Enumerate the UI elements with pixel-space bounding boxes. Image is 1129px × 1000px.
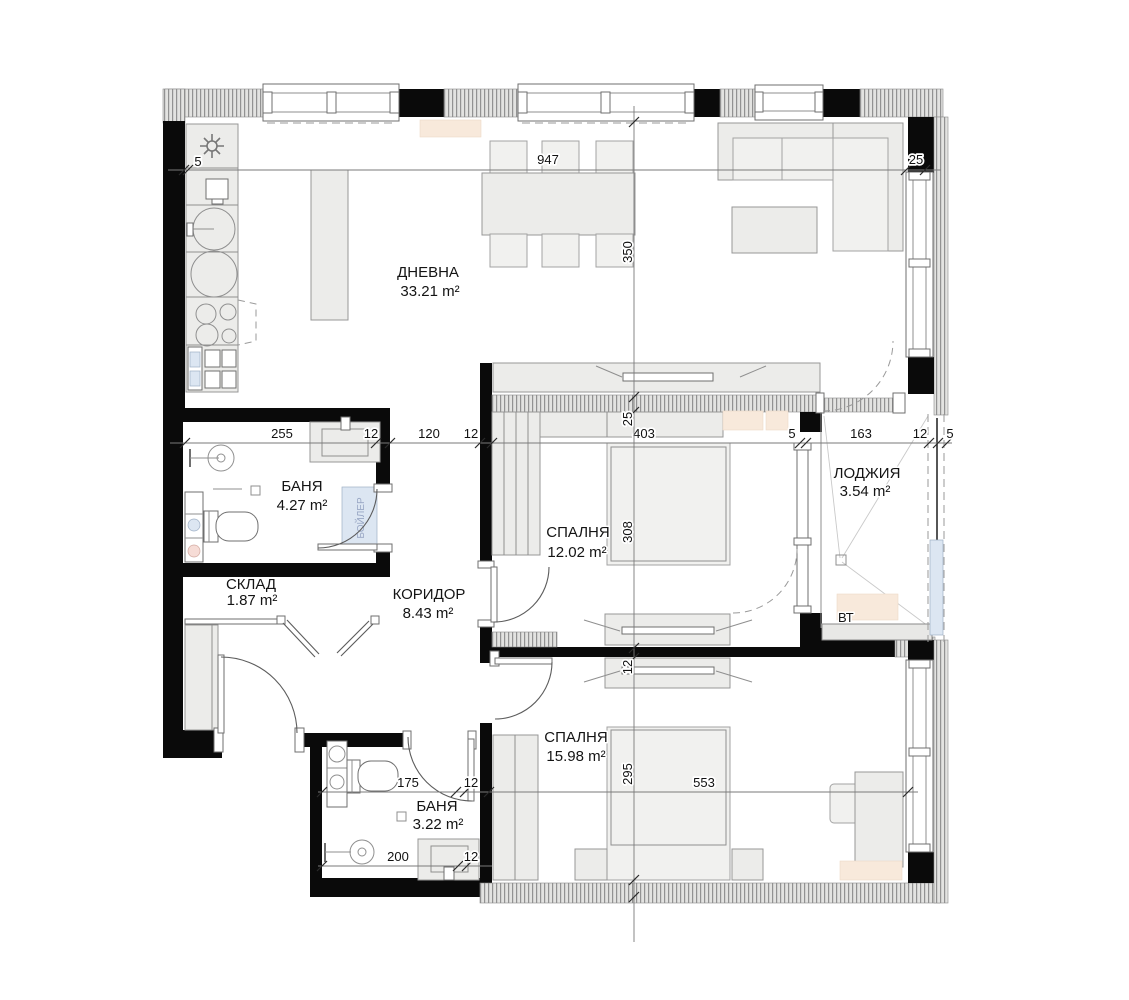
wall: [183, 408, 390, 422]
bedroom-2: [490, 651, 903, 880]
boiler-label: БОЙЛЕР: [354, 497, 367, 539]
dim-label: 12: [464, 849, 478, 864]
door-swing-arc: [495, 662, 552, 719]
entrance-door-arc: [221, 657, 297, 733]
wall: [480, 363, 492, 567]
wall-hatch: [860, 89, 943, 117]
fridge-door: [222, 350, 236, 367]
door-hinge: [277, 616, 285, 624]
dim-label: 350: [620, 241, 635, 263]
door-frame: [816, 393, 824, 413]
kitchen: [186, 124, 348, 392]
door-swing-arc: [494, 567, 549, 622]
wall-hatch: [934, 640, 948, 903]
dim-label: 120: [418, 426, 440, 441]
dim-label: 295: [620, 763, 635, 785]
door-leaf: [495, 658, 552, 664]
kitchen-island: [311, 170, 348, 320]
room-name-banya1: БАНЯ: [281, 478, 322, 495]
window-mullion: [327, 92, 336, 113]
door-leaf-line: [287, 620, 319, 654]
window-mullion: [909, 172, 930, 180]
room-area-banya1: 4.27 m²: [277, 497, 328, 514]
wall: [397, 89, 444, 117]
coffee-table: [732, 207, 817, 253]
nightstand: [575, 849, 607, 880]
dim-label: 25: [909, 152, 923, 167]
window-mullion: [909, 844, 930, 852]
wall: [163, 408, 183, 758]
hall-closet: [185, 625, 218, 730]
cabinet-knob: [188, 519, 200, 531]
door-leaf-line: [341, 624, 373, 656]
window: [755, 85, 823, 120]
ac-indoor-unit: [420, 120, 481, 137]
door-hinge: [371, 616, 379, 624]
fridge-door: [205, 350, 220, 367]
room-area-lodzhiya: 3.54 m²: [840, 483, 891, 500]
window-mullion: [390, 92, 399, 113]
entrance-door-leaf: [218, 655, 224, 733]
sofa-cushion: [782, 138, 833, 180]
parapet: [822, 624, 932, 640]
door-frame: [295, 728, 304, 752]
wall: [183, 563, 390, 577]
wall-hatch: [720, 89, 757, 117]
window-mullion: [263, 92, 272, 113]
wall: [310, 878, 492, 897]
floor-plan-page: БОЙЛЕР ВТ: [0, 0, 1129, 1000]
toilet-bowl: [358, 761, 398, 791]
dim-label: 5: [194, 154, 201, 169]
dim-label: 5: [788, 426, 795, 441]
room-name-spalnya1: СПАЛНЯ: [546, 524, 609, 541]
tv: [622, 667, 714, 674]
chair: [490, 141, 527, 174]
nightstand: [732, 849, 763, 880]
tv: [622, 627, 714, 634]
dim-label: 947: [537, 152, 559, 167]
wall: [480, 723, 492, 897]
dim-label: 403: [633, 426, 655, 441]
chair: [542, 234, 579, 267]
dining-table: [482, 173, 635, 235]
wall: [694, 89, 720, 117]
wall: [908, 640, 934, 660]
wall-hatch: [163, 89, 185, 123]
room-area-banya2: 3.22 m²: [413, 816, 464, 833]
room-name-spalnya2: СПАЛНЯ: [544, 729, 607, 746]
window-mullion: [909, 660, 930, 668]
bed: [607, 443, 730, 565]
basin-tap: [341, 417, 350, 430]
wall-hatch: [444, 89, 520, 117]
door-leaf-line: [337, 621, 369, 653]
door-leaf-line: [283, 623, 315, 657]
small-appliance: [212, 199, 223, 204]
loggia-glazed-door: [797, 443, 808, 613]
chair: [596, 141, 633, 174]
oven-door-dash: [238, 300, 256, 345]
bedroom-1: [491, 411, 811, 645]
window-mullion: [909, 349, 930, 357]
slope-line: [824, 416, 840, 558]
wall: [908, 357, 934, 394]
sofa-cushion: [833, 138, 888, 251]
small-appliance: [206, 179, 228, 199]
window-mullion: [601, 92, 610, 113]
dim-label: 25: [620, 412, 635, 426]
room-name-lodzhiya: ЛОДЖИЯ: [834, 465, 901, 482]
dim-label: 175: [397, 775, 419, 790]
cabinet-knob: [188, 545, 200, 557]
wall-hatch: [480, 883, 940, 903]
wall: [822, 640, 895, 657]
wall: [800, 412, 822, 432]
wall-hatch: [934, 117, 948, 415]
room-name-dnevna: ДНЕВНА: [397, 264, 459, 281]
ac-indoor-unit: [766, 411, 788, 430]
dim-label: 255: [271, 426, 293, 441]
wall: [492, 647, 800, 657]
dim-label: 308: [620, 521, 635, 543]
bed: [607, 727, 730, 880]
dim-label: 553: [693, 775, 715, 790]
room-area-spalnya2: 15.98 m²: [546, 748, 605, 765]
door-frame: [794, 606, 811, 613]
desk: [855, 772, 903, 867]
partition: [185, 619, 282, 624]
door-swing-arc: [408, 737, 472, 801]
room-name-sklad: СКЛАД: [226, 576, 276, 593]
sink-tap-base: [187, 223, 193, 236]
wall: [310, 733, 322, 897]
ac-indoor-unit: [840, 861, 902, 880]
window-mullion: [518, 92, 527, 113]
dim-label: 163: [850, 426, 872, 441]
door-leaf: [491, 567, 497, 622]
sofa-cushion: [733, 138, 782, 180]
chair: [490, 234, 527, 267]
wall: [823, 89, 860, 117]
wall-hatch: [492, 395, 822, 412]
storage: [277, 616, 379, 657]
basin-tap: [444, 867, 454, 880]
room-name-koridor: КОРИДОР: [393, 586, 466, 603]
ac-indoor-unit: [723, 411, 763, 430]
floor-drain: [251, 486, 260, 495]
window-mullion: [909, 748, 930, 756]
room-area-sklad: 1.87 m²: [227, 592, 278, 609]
room-name-banya2: БАНЯ: [416, 798, 457, 815]
door-frame: [893, 393, 905, 413]
fridge-door: [222, 371, 236, 388]
shaft: [492, 632, 557, 647]
window-mullion: [909, 259, 930, 267]
door-frame: [794, 538, 811, 545]
door-swing-arc-dashed: [733, 549, 797, 613]
living-room: [420, 120, 903, 392]
tv: [623, 373, 713, 381]
fridge-shelf: [190, 352, 200, 367]
wall: [163, 730, 222, 758]
floor-drain: [397, 812, 406, 821]
room-area-dnevna: 33.21 m²: [400, 283, 459, 300]
shower-head-center: [358, 848, 366, 856]
toilet-bowl: [216, 512, 258, 541]
door-frame: [403, 731, 411, 749]
outdoor-unit-label: ВТ: [838, 610, 854, 625]
room-area-spalnya1: 12.02 m²: [547, 544, 606, 561]
window-mullion: [685, 92, 694, 113]
window-mullion: [755, 92, 763, 112]
dim-label: 5: [946, 426, 953, 441]
fridge-door: [205, 371, 220, 388]
fridge-shelf: [190, 371, 200, 386]
wall: [908, 852, 934, 883]
door-sill: [822, 398, 895, 412]
shower-head: [350, 840, 374, 864]
dim-label: 12: [913, 426, 927, 441]
dim-label: 12: [364, 426, 378, 441]
floor-plan: БОЙЛЕР ВТ: [0, 0, 1129, 1000]
wall: [163, 121, 185, 413]
dim-label: 12: [464, 426, 478, 441]
glazing-pane: [930, 540, 943, 635]
room-area-koridor: 8.43 m²: [403, 605, 454, 622]
dim-label: 12: [620, 660, 635, 674]
dim-label: 200: [387, 849, 409, 864]
wall: [800, 613, 822, 657]
window-mullion: [815, 92, 823, 112]
dim-label: 12: [464, 775, 478, 790]
